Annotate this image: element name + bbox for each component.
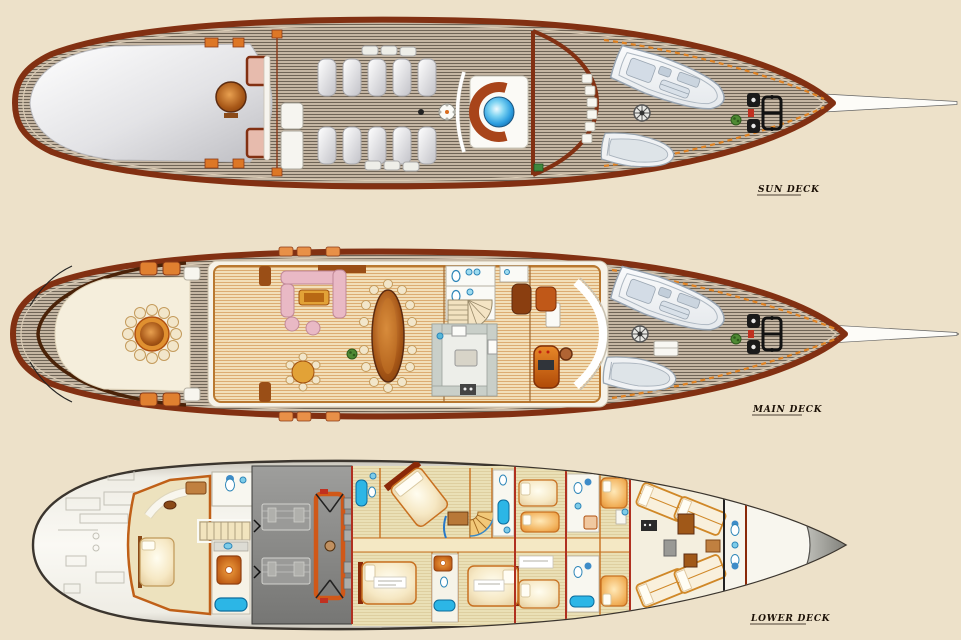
dresser — [186, 482, 206, 494]
side-step — [184, 267, 200, 280]
lower-deck-label: LOWER DECK — [750, 614, 831, 624]
sun-deck-plan: SUN DECK — [15, 20, 959, 195]
deck-plan-drawing: SUN DECK — [0, 0, 961, 640]
nav-light — [534, 164, 543, 171]
plant — [731, 334, 741, 344]
lower-deck-plan: LOWER DECK — [33, 460, 845, 629]
console-cabinet — [536, 287, 556, 311]
cabinet — [259, 382, 271, 402]
console-screen — [538, 360, 554, 370]
bathtub — [356, 480, 367, 506]
chaise — [333, 270, 346, 318]
bow-cap — [804, 518, 845, 572]
dining-table-top — [379, 298, 397, 374]
ship-wheel — [634, 105, 650, 121]
pillow — [142, 541, 155, 550]
bar-cabinet — [281, 103, 303, 129]
toilet — [574, 483, 582, 494]
equipment-box — [664, 540, 676, 556]
guest-bathroom — [567, 556, 599, 612]
toilet — [452, 271, 460, 282]
plant — [347, 349, 357, 359]
ship-wheel — [632, 326, 648, 342]
salon-sofa — [281, 271, 339, 284]
guest-cabin — [468, 566, 519, 606]
sink — [370, 473, 376, 479]
jacuzzi-pool — [484, 97, 514, 127]
pillow — [523, 515, 531, 525]
bar-cabinet — [512, 284, 531, 314]
stairs — [200, 522, 250, 540]
side-table — [164, 501, 176, 509]
cabinet — [259, 266, 271, 286]
toilet — [441, 577, 448, 587]
bathtub — [215, 598, 247, 611]
fridge — [488, 340, 497, 354]
galley-island — [455, 350, 477, 366]
coffee-table-top — [304, 293, 324, 302]
guest-cabin — [358, 562, 416, 604]
pillow — [521, 584, 530, 597]
bed-runner — [374, 577, 406, 588]
sink — [466, 269, 472, 275]
sink — [437, 333, 443, 339]
pillow — [603, 481, 611, 492]
pillow — [603, 594, 611, 605]
helm-pod — [439, 104, 456, 121]
main-deck-label: MAIN DECK — [752, 405, 823, 415]
appliance — [452, 326, 466, 336]
toilet-lid — [585, 479, 592, 486]
engine-room — [252, 466, 352, 624]
corridor — [352, 538, 630, 552]
captains-chair — [560, 348, 572, 360]
forepeak — [746, 472, 808, 620]
sink — [622, 509, 628, 515]
cabinet — [706, 540, 720, 552]
bathtub — [498, 500, 509, 524]
deck-hatch — [654, 341, 678, 356]
toilet — [731, 525, 739, 536]
bar-table-base — [224, 113, 238, 118]
windbreak — [264, 56, 270, 160]
pillow — [521, 483, 530, 495]
toilet — [369, 487, 376, 497]
toilet — [500, 475, 507, 485]
toilet — [574, 567, 582, 578]
plant — [731, 115, 741, 125]
wardrobe — [448, 512, 468, 525]
armchair — [306, 321, 320, 335]
pantry — [500, 266, 528, 282]
bed-runner — [519, 556, 553, 568]
lower-deck-interior — [58, 460, 845, 626]
pillow — [365, 565, 375, 581]
toilet — [226, 479, 235, 491]
crew-bathroom — [731, 521, 739, 570]
bar-table — [216, 82, 246, 112]
sun-deck-label: SUN DECK — [758, 185, 820, 195]
yacht-deck-plan-page: SUN DECK — [0, 0, 961, 640]
sink — [240, 477, 246, 483]
sink — [224, 543, 232, 549]
bar-cabinet — [281, 131, 303, 169]
stove — [460, 384, 476, 395]
pillow — [503, 570, 515, 584]
side-step — [184, 388, 200, 401]
shower — [584, 516, 597, 529]
armchair — [285, 317, 299, 331]
galley — [432, 324, 497, 396]
main-deck-plan: MAIN DECK — [13, 247, 959, 421]
mast-step — [418, 109, 424, 115]
toilet-lid — [732, 563, 739, 570]
sink — [732, 542, 738, 548]
sink — [505, 270, 510, 275]
sink — [474, 269, 480, 275]
crew-locker — [684, 554, 697, 567]
guest-bathroom — [493, 470, 514, 536]
bed-runner — [474, 580, 504, 591]
sink — [467, 289, 473, 295]
jacuzzi — [470, 76, 528, 148]
guest-bathroom — [567, 474, 599, 532]
bathtub — [570, 596, 594, 607]
sink — [504, 527, 510, 533]
sink — [575, 503, 581, 509]
crew-locker — [678, 514, 694, 534]
bathtub — [434, 600, 455, 611]
salon-sofa — [281, 284, 294, 317]
toilet-lid — [585, 563, 592, 570]
master-bathroom — [212, 472, 252, 614]
ensuite-bathroom — [432, 554, 458, 622]
